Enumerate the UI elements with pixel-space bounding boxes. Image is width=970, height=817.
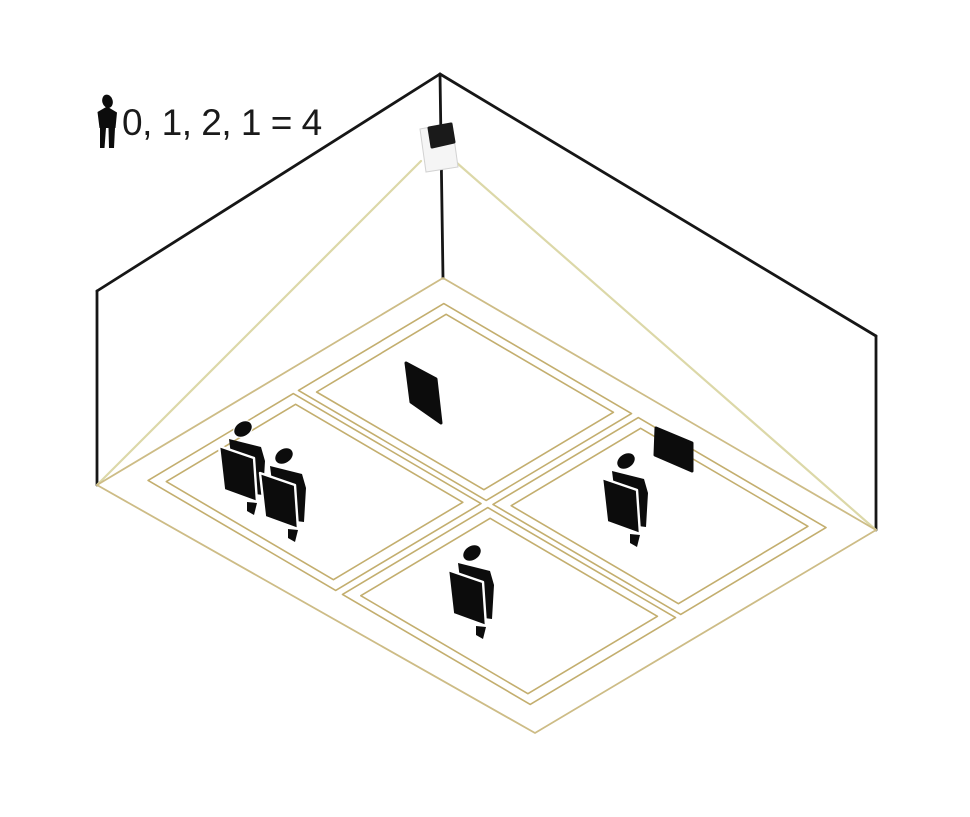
zone-counts-text: 0, 1, 2, 1 = 4 — [122, 104, 322, 141]
fov-footprint — [97, 278, 876, 733]
panel-object-far — [406, 363, 441, 423]
person-icon — [602, 449, 648, 547]
panel-objects — [406, 363, 692, 471]
diagram-stage: 0, 1, 2, 1 = 4 — [0, 0, 970, 817]
person-icon — [219, 417, 265, 515]
sensor-device — [420, 123, 458, 172]
zone-far — [299, 304, 632, 501]
sensor-screen — [429, 124, 454, 147]
panel-object-right — [655, 428, 692, 471]
corner-edge — [440, 74, 443, 278]
fov-ray-left — [97, 161, 421, 485]
fov-ray-right — [457, 163, 876, 530]
zone-near — [343, 508, 676, 705]
zone-left — [148, 394, 481, 591]
person-icon — [260, 444, 306, 542]
person-icon — [448, 541, 494, 639]
person-icon — [96, 94, 118, 150]
fov-cone — [97, 161, 876, 733]
legend: 0, 1, 2, 1 = 4 — [96, 93, 322, 151]
